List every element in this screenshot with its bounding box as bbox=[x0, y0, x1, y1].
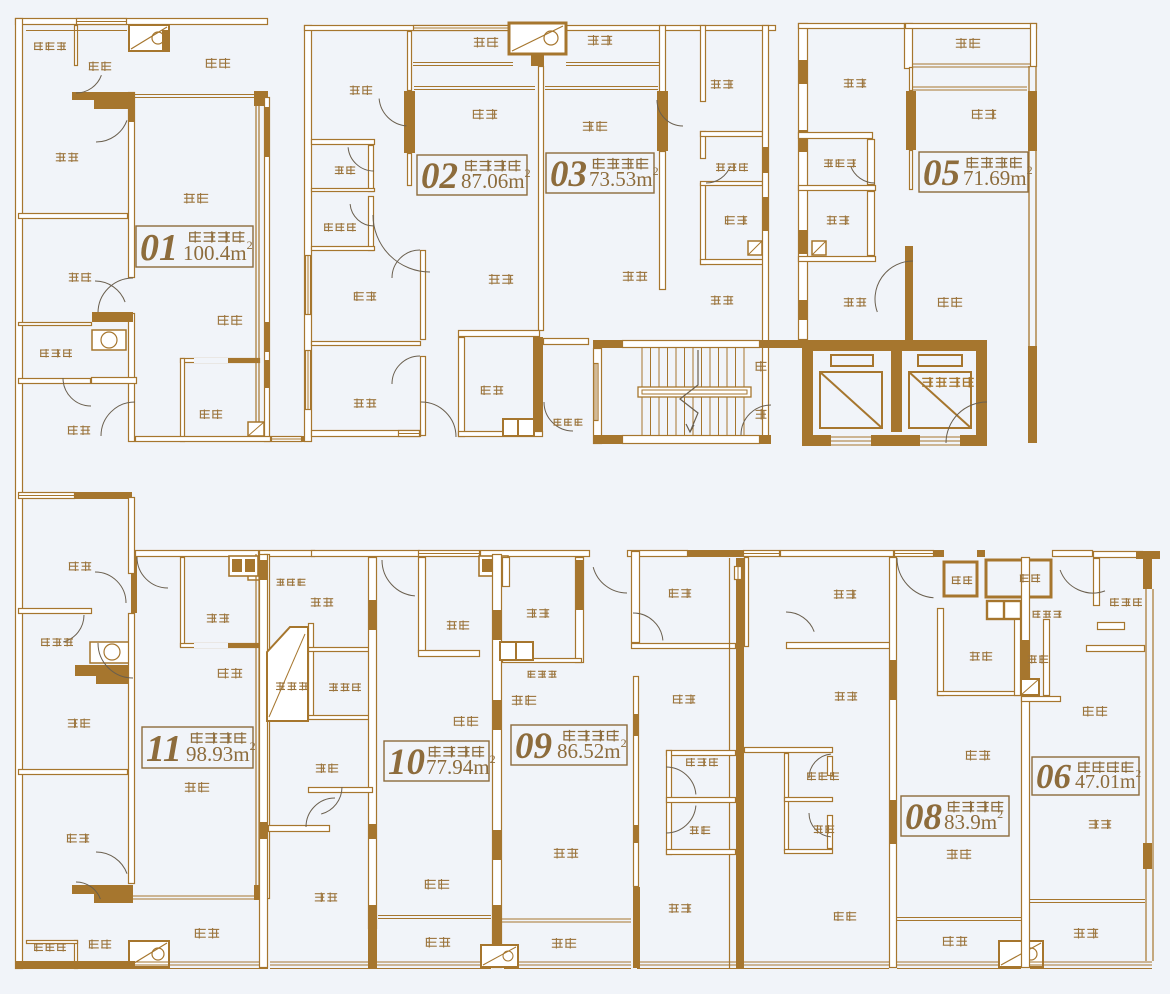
svg-text:83.9m2: 83.9m2 bbox=[944, 807, 1003, 834]
svg-text:71.69m2: 71.69m2 bbox=[963, 163, 1033, 190]
svg-text:87.06m2: 87.06m2 bbox=[461, 166, 531, 193]
svg-text:02: 02 bbox=[421, 156, 458, 197]
svg-text:03: 03 bbox=[550, 154, 587, 195]
svg-text:98.93m2: 98.93m2 bbox=[186, 739, 256, 766]
svg-text:47.01m2: 47.01m2 bbox=[1075, 768, 1141, 793]
svg-text:06: 06 bbox=[1036, 757, 1072, 796]
svg-text:11: 11 bbox=[146, 728, 182, 770]
svg-text:01: 01 bbox=[140, 227, 178, 269]
svg-text:77.94m2: 77.94m2 bbox=[426, 752, 496, 779]
svg-text:73.53m2: 73.53m2 bbox=[589, 164, 659, 191]
svg-text:09: 09 bbox=[515, 726, 552, 767]
svg-text:100.4m2: 100.4m2 bbox=[183, 238, 253, 265]
svg-text:08: 08 bbox=[905, 797, 942, 838]
svg-text:86.52m2: 86.52m2 bbox=[557, 736, 627, 763]
svg-text:10: 10 bbox=[388, 742, 425, 783]
svg-text:05: 05 bbox=[923, 153, 960, 194]
